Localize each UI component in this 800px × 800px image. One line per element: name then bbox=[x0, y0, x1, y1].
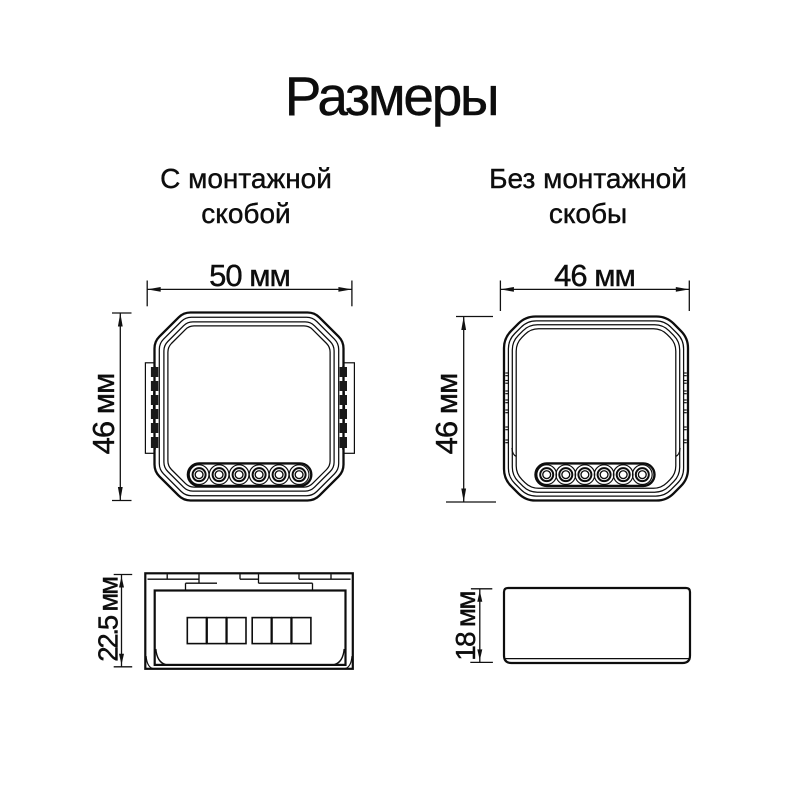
svg-text:46 мм: 46 мм bbox=[86, 374, 121, 455]
svg-text:Размеры: Размеры bbox=[285, 65, 497, 127]
svg-text:46 мм: 46 мм bbox=[554, 258, 635, 293]
svg-text:18 мм: 18 мм bbox=[450, 592, 481, 661]
svg-text:46 мм: 46 мм bbox=[429, 374, 464, 455]
svg-text:С монтажной: С монтажной bbox=[160, 163, 332, 194]
svg-text:Без монтажной: Без монтажной bbox=[489, 163, 687, 194]
svg-text:50 мм: 50 мм bbox=[209, 258, 290, 293]
svg-text:скобой: скобой bbox=[201, 198, 290, 229]
svg-text:22.5 мм: 22.5 мм bbox=[93, 577, 124, 662]
svg-text:скобы: скобы bbox=[549, 198, 627, 229]
